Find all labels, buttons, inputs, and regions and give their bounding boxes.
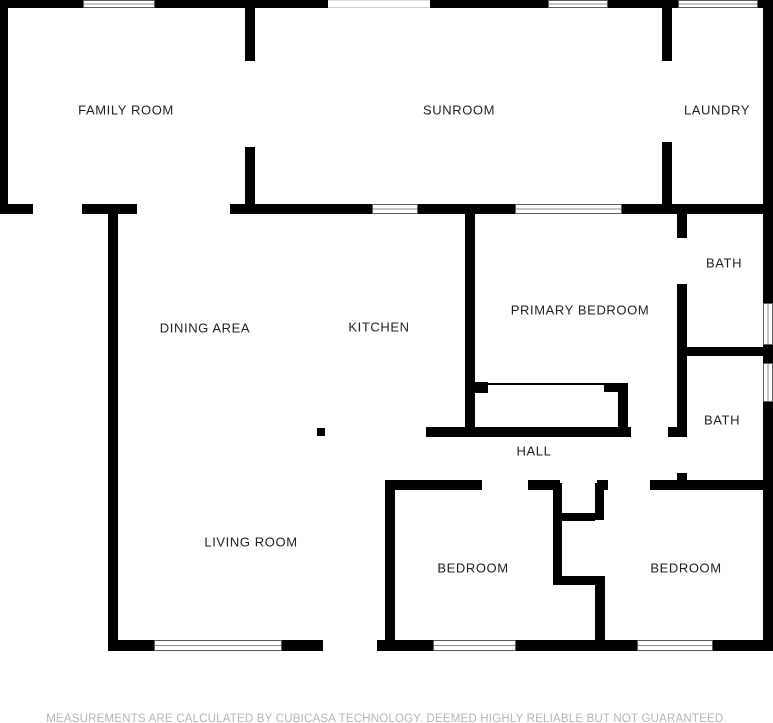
wall-segment: [108, 640, 154, 651]
wall-segment: [668, 427, 687, 437]
window-icon: [678, 0, 758, 8]
wall-segment: [595, 585, 605, 650]
wall-segment: [245, 8, 255, 61]
room-label-hall: HALL: [517, 444, 552, 459]
room-label-sunroom: SUNROOM: [423, 103, 495, 118]
wall-segment: [677, 347, 773, 356]
wall-segment: [758, 0, 773, 8]
window-icon: [515, 204, 622, 214]
window-icon: [548, 0, 608, 8]
wall-segment: [430, 0, 548, 8]
wall-segment: [677, 284, 687, 350]
window-icon: [372, 204, 418, 214]
window-icon: [433, 640, 516, 651]
wall-segment: [553, 483, 562, 585]
wall-segment: [713, 640, 773, 651]
wall-segment: [82, 204, 137, 214]
room-label-dining-area: DINING AREA: [160, 321, 250, 336]
wall-segment: [618, 383, 628, 437]
wall-segment: [595, 483, 604, 520]
room-label-bedroom: BEDROOM: [437, 561, 508, 576]
wall-segment: [317, 428, 325, 436]
wall-segment: [622, 204, 773, 214]
wall-segment: [763, 402, 773, 650]
wall-segment: [0, 0, 83, 8]
wall-segment: [230, 204, 372, 214]
wall-segment: [245, 147, 255, 204]
wall-segment: [465, 214, 475, 437]
room-label-primary-bedroom: PRIMARY BEDROOM: [511, 303, 650, 318]
window-icon: [154, 640, 282, 651]
wall-segment: [155, 0, 328, 8]
wall-segment: [488, 383, 606, 385]
wall-segment: [562, 513, 595, 521]
wall-segment: [418, 204, 515, 214]
wall-segment: [516, 640, 637, 651]
wall-segment: [385, 480, 482, 490]
room-label-laundry: LAUNDRY: [684, 103, 750, 118]
room-label-kitchen: KITCHEN: [348, 320, 409, 335]
wall-segment: [0, 204, 33, 214]
room-label-family-room: FAMILY ROOM: [78, 103, 174, 118]
wall-segment: [553, 576, 605, 585]
wall-segment: [0, 8, 8, 214]
room-label-bath: BATH: [706, 256, 742, 271]
floorplan-canvas: MEASUREMENTS ARE CALCULATED BY CUBICASA …: [0, 0, 773, 723]
window-icon: [763, 363, 773, 402]
wall-segment: [677, 214, 687, 238]
wall-segment: [650, 480, 773, 490]
wall-segment: [662, 8, 672, 61]
window-icon: [83, 0, 155, 8]
wall-segment: [763, 8, 773, 303]
disclaimer-text: MEASUREMENTS ARE CALCULATED BY CUBICASA …: [46, 713, 726, 723]
window-icon: [763, 303, 773, 345]
window-icon: [637, 640, 713, 651]
wall-segment: [473, 382, 488, 393]
wall-segment: [108, 214, 118, 650]
wall-segment: [426, 427, 631, 437]
wall-segment: [385, 490, 395, 650]
wall-segment: [608, 0, 678, 8]
room-label-bath: BATH: [704, 413, 740, 428]
wall-opening: [328, 0, 430, 8]
wall-segment: [677, 356, 687, 437]
room-label-living-room: LIVING ROOM: [204, 535, 297, 550]
room-label-bedroom: BEDROOM: [650, 561, 721, 576]
wall-segment: [662, 142, 672, 204]
wall-segment: [282, 640, 323, 651]
